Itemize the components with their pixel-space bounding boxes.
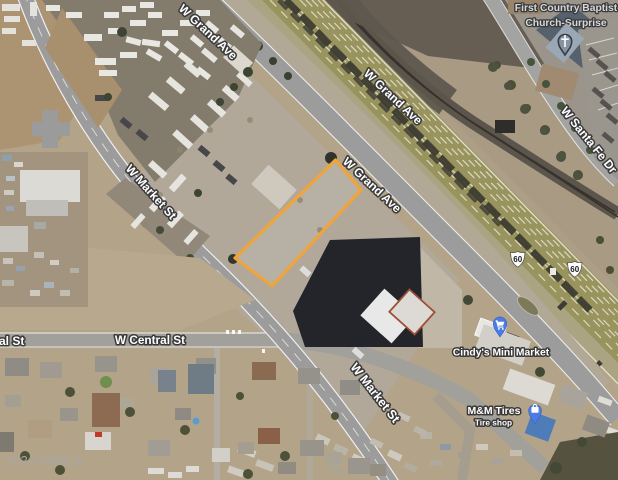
svg-text:2024 ARMLS: 2024 ARMLS [6,453,83,468]
svg-text:M&M Tires: M&M Tires [468,405,521,417]
svg-text:W Central St: W Central St [115,333,185,347]
svg-text:60: 60 [513,255,522,264]
svg-text:Cindy's Mini Market: Cindy's Mini Market [453,348,550,359]
svg-text:W Central St: W Central St [0,334,24,348]
svg-text:Tire shop: Tire shop [475,418,512,428]
svg-text:First Country Baptist: First Country Baptist [515,3,618,14]
svg-text:60: 60 [570,265,579,274]
